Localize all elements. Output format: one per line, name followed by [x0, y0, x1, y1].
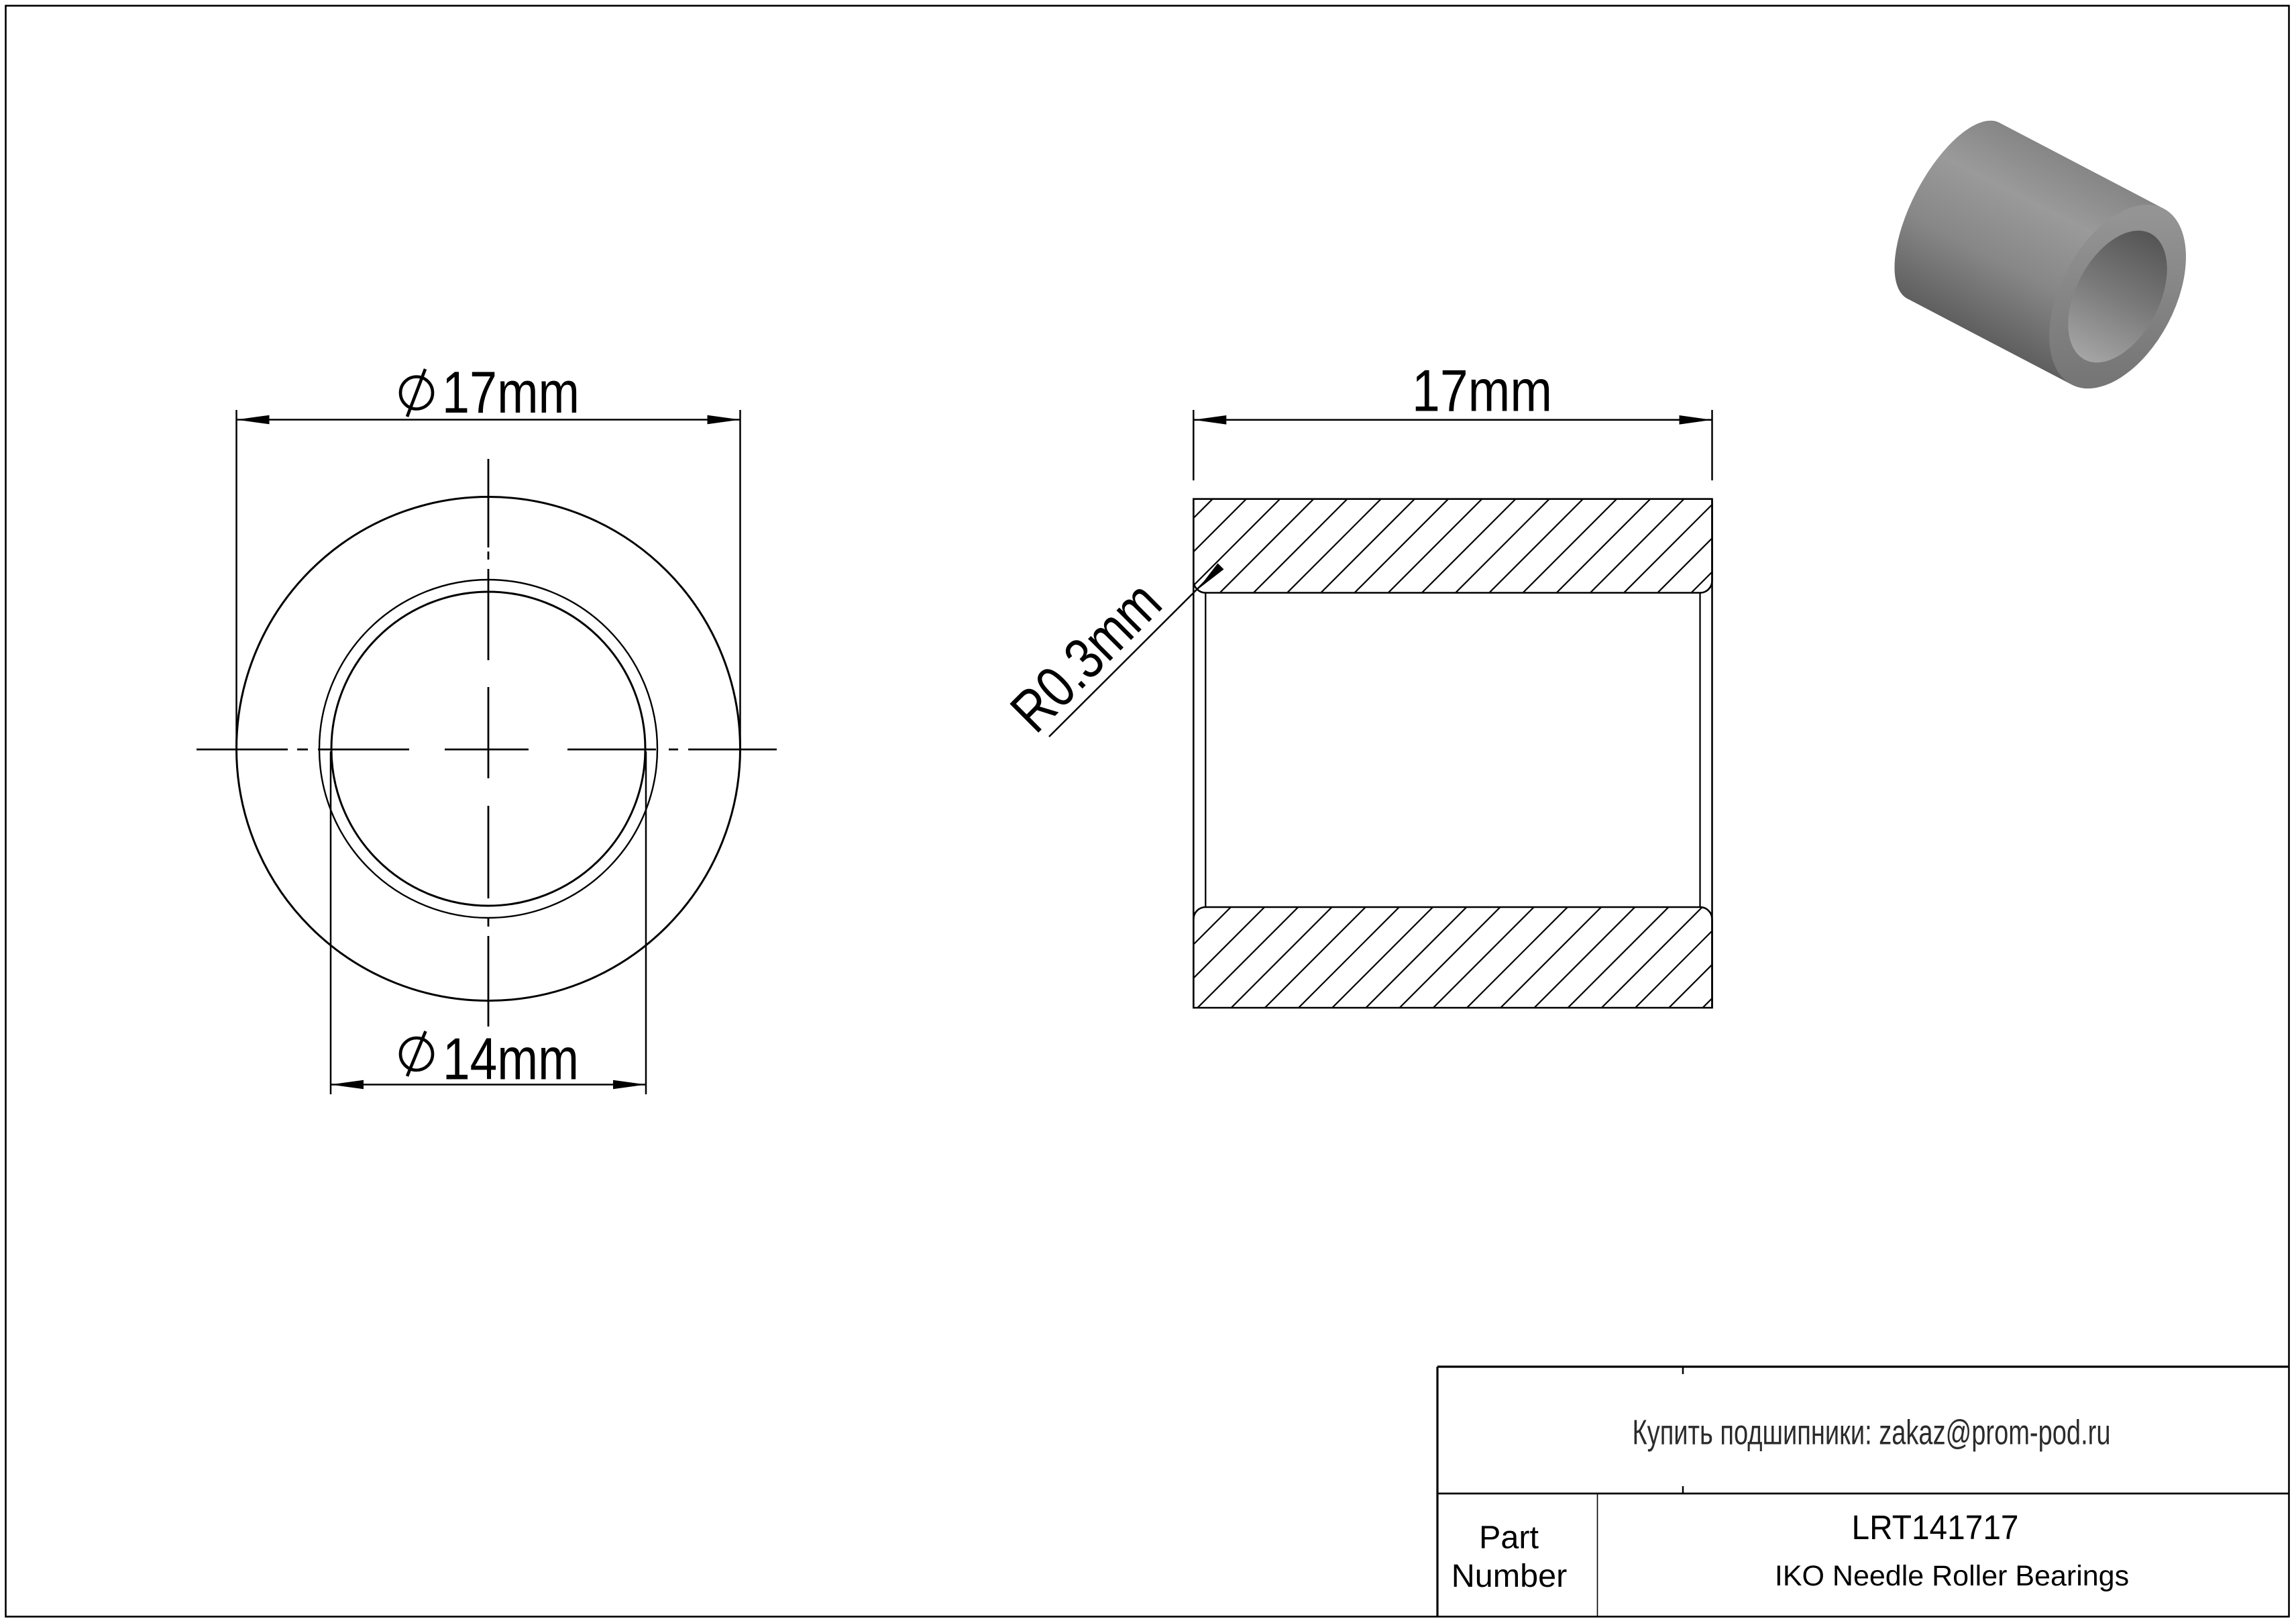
svg-text:LRT141717: LRT141717	[1852, 1508, 2019, 1547]
svg-text:IKO Needle Roller Bearings: IKO Needle Roller Bearings	[1775, 1560, 2129, 1592]
svg-text:17mm: 17mm	[442, 359, 580, 425]
svg-text:Part: Part	[1479, 1520, 1539, 1556]
svg-text:17mm: 17mm	[1412, 357, 1552, 423]
svg-text:Number: Number	[1452, 1558, 1568, 1594]
svg-text:Купить подшипники: zakaz@prom-: Купить подшипники: zakaz@prom-pod.ru	[1633, 1413, 2111, 1452]
svg-text:14mm: 14mm	[443, 1026, 579, 1092]
